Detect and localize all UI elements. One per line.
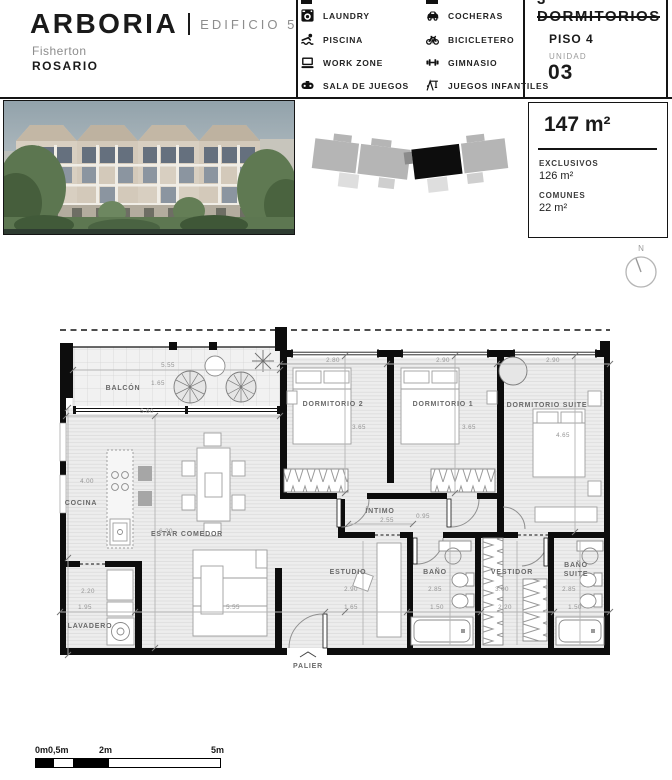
dim-bano-h: 2.85	[428, 586, 442, 593]
playground-icon	[426, 79, 439, 92]
dim-cocina-h: 4.00	[80, 478, 94, 485]
room-label-balcon: BALCÓN	[106, 383, 141, 392]
gym-icon	[426, 56, 439, 69]
dim-intimo-h: 0.95	[416, 513, 430, 520]
floorplan-sheet: ARBORIA EDIFICIO 5 Fisherton ROSARIO LAU…	[0, 0, 672, 780]
room-label-bano-suite-1: BAÑO	[564, 560, 588, 569]
building-label: EDIFICIO 5	[200, 17, 297, 32]
scale-label-5: 5m	[211, 745, 224, 755]
dim-estar-w: 5.80	[140, 408, 154, 415]
amenity-laundry: LAUNDRY	[301, 9, 370, 22]
clipped-amenity-icon	[301, 0, 312, 4]
dim-estudio-h: 2.90	[344, 586, 358, 593]
amenity-bicicletero: BICICLETERO	[426, 33, 514, 46]
dim-bsuite-h: 2.85	[562, 586, 576, 593]
key-plan	[308, 132, 513, 208]
dim-lav-w: 1.95	[78, 604, 92, 611]
common-area-label: COMUNES	[539, 191, 586, 200]
amenity-label: GIMNASIO	[448, 58, 497, 68]
sofa	[193, 550, 267, 636]
area-panel-rule	[538, 148, 657, 150]
workzone-icon	[301, 56, 314, 69]
brand-name: ARBORIA	[30, 8, 178, 40]
bike-icon	[426, 33, 439, 46]
dim-d2-h: 3.65	[352, 424, 366, 431]
area-panel: 147 m² EXCLUSIVOS 126 m² COMUNES 22 m²	[528, 102, 668, 238]
building-photo	[3, 100, 295, 235]
entry-chevron	[300, 652, 316, 657]
key-plan-highlighted-unit	[411, 144, 462, 180]
room-label-intimo: ÍNTIMO	[365, 506, 394, 515]
amenity-label: BICICLETERO	[448, 35, 514, 45]
floor-label: PISO 4	[549, 32, 594, 46]
amenity-label: WORK ZONE	[323, 58, 383, 68]
dim-balcon-w: 5.55	[161, 362, 175, 369]
dim-d1-h: 3.65	[462, 424, 476, 431]
dim-suite-h: 4.65	[556, 432, 570, 439]
dim-d1-w: 2.90	[436, 357, 450, 364]
room-label-vestidor: VESTIDOR	[491, 569, 533, 576]
unit-type-title: 3 DORMITORIOS	[537, 0, 668, 25]
common-area-value: 22 m²	[539, 202, 567, 214]
gameroom-icon	[301, 79, 314, 92]
header-bottom-rule	[0, 97, 672, 99]
amenity-label: SALA DE JUEGOS	[323, 81, 409, 91]
dim-estar-h: 6.20	[159, 528, 173, 535]
header-divider-1	[296, 0, 298, 98]
brand-separator	[188, 13, 190, 35]
dim-bsuite-w: 1.50	[568, 604, 582, 611]
building-render	[4, 101, 294, 234]
amenity-gimnasio: GIMNASIO	[426, 56, 497, 69]
dim-bano-w: 1.50	[430, 604, 444, 611]
floor-plan: BALCÓN COCINA ESTAR COMEDOR LAVADERO DOR…	[35, 323, 615, 675]
room-label-bano-suite-2: SUITE	[564, 571, 589, 578]
scale-bar: 0m 0,5m 2m 5m	[35, 745, 225, 771]
room-label-dorm2: DORMITORIO 2	[303, 401, 364, 408]
unit-panel-rule	[537, 16, 660, 18]
unit-label: UNIDAD	[549, 52, 587, 61]
room-label-dorm1: DORMITORIO 1	[413, 401, 474, 408]
dim-suite-w: 2.90	[546, 357, 560, 364]
laundry-icon	[301, 9, 314, 22]
dim-d2-w: 2.80	[326, 357, 340, 364]
amenity-cocheras: COCHERAS	[426, 9, 503, 22]
dim-lav-h: 2.20	[81, 588, 95, 595]
location-region: ROSARIO	[32, 59, 99, 73]
closet-dorm2	[284, 469, 348, 492]
scale-label-2: 2m	[99, 745, 112, 755]
total-area: 147 m²	[544, 113, 611, 137]
room-label-bano: BAÑO	[423, 567, 447, 576]
exclusive-area-value: 126 m²	[539, 170, 573, 182]
amenity-label: COCHERAS	[448, 11, 503, 21]
dim-vest-h: 3.00	[495, 586, 509, 593]
scale-label-0: 0m	[35, 745, 48, 755]
exclusive-area-label: EXCLUSIVOS	[539, 159, 599, 168]
brand-block: ARBORIA EDIFICIO 5	[30, 8, 297, 40]
room-label-estudio: ESTUDIO	[330, 569, 367, 576]
scale-bar-segments	[35, 758, 221, 768]
car-icon	[426, 9, 439, 22]
room-label-suite: DORMITORIO SUITE	[507, 402, 588, 409]
room-label-lavadero: LAVADERO	[68, 623, 113, 630]
dim-intimo-w: 2.55	[380, 517, 394, 524]
laundry-room-fixtures	[107, 570, 134, 645]
pool-icon	[301, 33, 314, 46]
dim-balcon-d: 1.65	[151, 380, 165, 387]
dim-vest-w: 2.20	[498, 604, 512, 611]
amenity-label: PISCINA	[323, 35, 363, 45]
dim-sofa-w: 5.55	[226, 604, 240, 611]
north-compass: N	[618, 242, 664, 292]
walkin-closet-2	[523, 579, 547, 641]
compass-needle	[636, 259, 641, 273]
scale-label-05: 0,5m	[48, 745, 69, 755]
amenity-workzone: WORK ZONE	[301, 56, 383, 69]
room-label-cocina: COCINA	[65, 500, 97, 507]
location-city: Fisherton	[32, 44, 87, 58]
room-label-palier: PALIER	[293, 663, 323, 670]
amenity-label: LAUNDRY	[323, 11, 370, 21]
unit-number: 03	[548, 61, 573, 85]
amenity-piscina: PISCINA	[301, 33, 363, 46]
closet-dorm1	[431, 469, 495, 492]
clipped-amenity-icon	[426, 0, 438, 4]
north-label: N	[638, 244, 644, 253]
dim-estudio-w: 1.65	[344, 604, 358, 611]
amenity-sala-de-juegos: SALA DE JUEGOS	[301, 79, 409, 92]
